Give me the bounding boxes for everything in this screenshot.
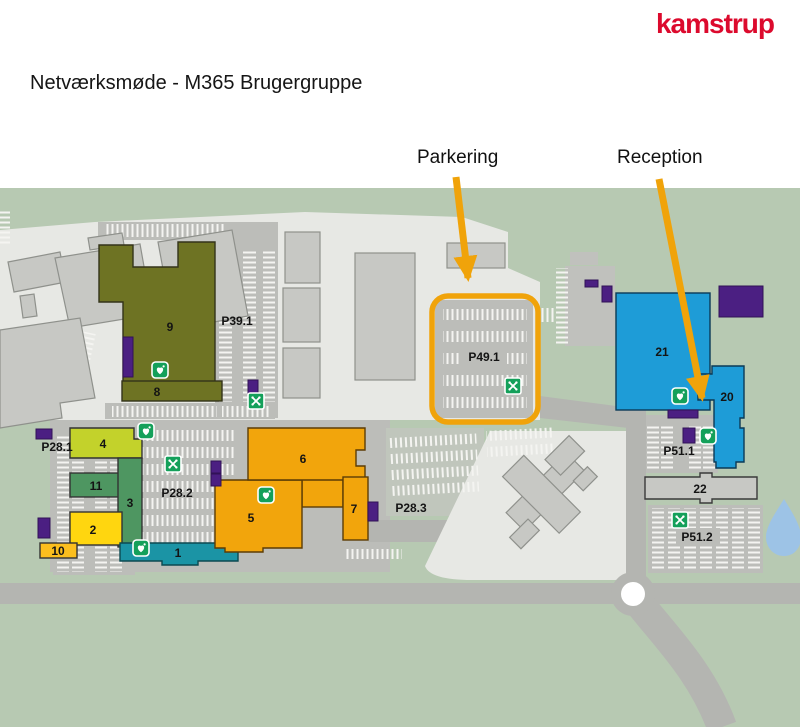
- kamstrup-logo: kamstrup: [656, 8, 774, 40]
- aed-icon: [700, 428, 716, 444]
- building-label: 8: [154, 385, 161, 399]
- building-label: 5: [248, 511, 255, 525]
- building-8: [122, 381, 222, 401]
- building-label: 3: [127, 496, 134, 510]
- building-label: 9: [167, 320, 174, 334]
- parking-label: P51.1: [663, 444, 695, 458]
- building-label: 22: [693, 482, 707, 496]
- assembly-point-icon: [165, 456, 181, 472]
- building-6: [248, 428, 365, 480]
- building-label: 21: [655, 345, 669, 359]
- aed-icon: [258, 487, 274, 503]
- building-label: 20: [720, 390, 734, 404]
- site-map: 9 8 4 11 3 2 10 1 5 6 7 21 20 22 P39.1 P…: [0, 0, 800, 727]
- main-road: [0, 583, 800, 604]
- assembly-point-icon: [672, 512, 688, 528]
- building-label: 7: [351, 502, 358, 516]
- parking-label: P28.2: [161, 486, 193, 500]
- aed-icon: [152, 362, 168, 378]
- assembly-point-icon: [248, 393, 264, 409]
- building-label: 10: [51, 544, 65, 558]
- building-label: 11: [90, 479, 103, 493]
- label-parkering: Parkering: [417, 147, 498, 169]
- page-title: Netværksmøde - M365 Brugergruppe: [30, 72, 362, 95]
- building-label: 6: [300, 452, 307, 466]
- building-label: 1: [175, 546, 182, 560]
- parking-label: P39.1: [221, 314, 253, 328]
- purple-building: [719, 286, 763, 317]
- assembly-point-icon: [505, 378, 521, 394]
- aed-icon: [138, 423, 154, 439]
- building-5-annex: [302, 478, 343, 507]
- aed-icon: [672, 388, 688, 404]
- parking-label: P51.2: [681, 530, 713, 544]
- building-label: 2: [90, 523, 97, 537]
- parking-label: P28.3: [395, 501, 427, 515]
- building-label: 4: [100, 437, 107, 451]
- label-reception: Reception: [617, 147, 703, 169]
- parking-label: P28.1: [41, 440, 73, 454]
- aed-icon: [133, 540, 149, 556]
- parking-label: P49.1: [468, 350, 500, 364]
